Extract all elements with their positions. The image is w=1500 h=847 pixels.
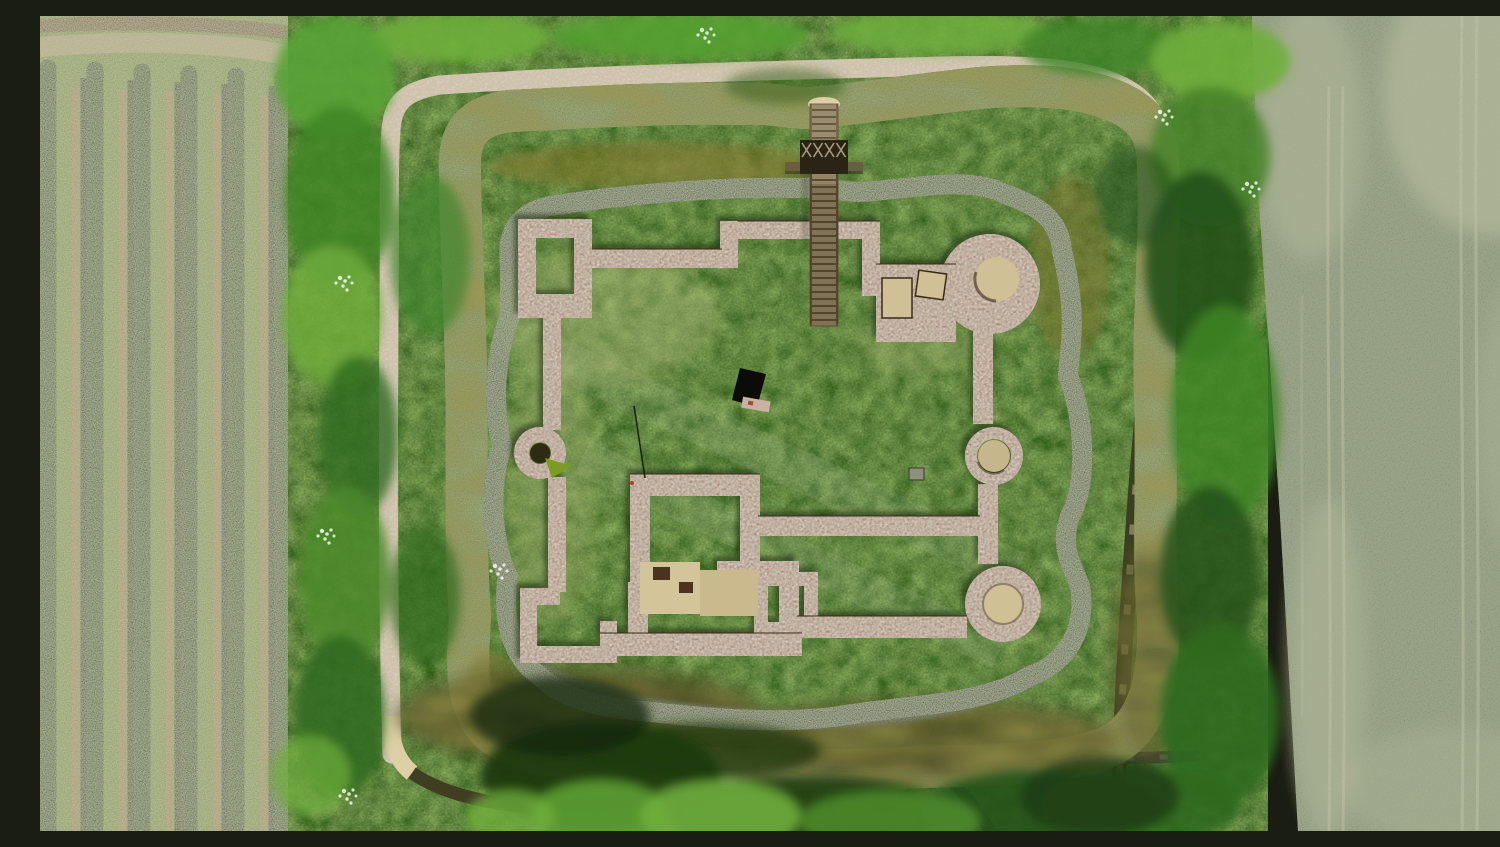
- orchard-row: [123, 72, 143, 831]
- orchard-row: [217, 76, 237, 831]
- path-tree-shadow: [1095, 146, 1175, 246]
- aerial-photo: [40, 16, 1500, 831]
- bridge-platform: [800, 140, 848, 174]
- orchard: [40, 16, 308, 831]
- bridge-walkway-light: [810, 104, 838, 140]
- bridge-arm-shadow: [848, 171, 863, 174]
- annex-floor: [700, 570, 758, 616]
- bridge-side-arm: [848, 162, 863, 171]
- tree-shadow-mass: [470, 676, 650, 756]
- tramline: [1301, 296, 1302, 716]
- orchard-row: [40, 68, 49, 831]
- tree-canopy: [390, 176, 470, 336]
- bridge-arm-shadow: [785, 171, 800, 174]
- orchard-row: [76, 70, 96, 831]
- annex-feature: [679, 582, 693, 593]
- room-floor: [882, 278, 912, 318]
- bridge-walkway-shade: [810, 184, 838, 326]
- tree-canopy: [270, 736, 350, 816]
- room-floor: [915, 270, 946, 300]
- bridge-side-arm: [785, 162, 800, 171]
- east-tower-floor: [978, 440, 1010, 472]
- orchard-row: [170, 74, 190, 831]
- tree-canopy: [390, 526, 460, 666]
- sign-base-mark: [748, 401, 754, 406]
- stone-block: [909, 468, 924, 480]
- red-marker: [630, 481, 634, 485]
- annex-feature: [653, 567, 670, 580]
- orchard-row: [264, 78, 284, 831]
- crop-field: [1252, 16, 1500, 831]
